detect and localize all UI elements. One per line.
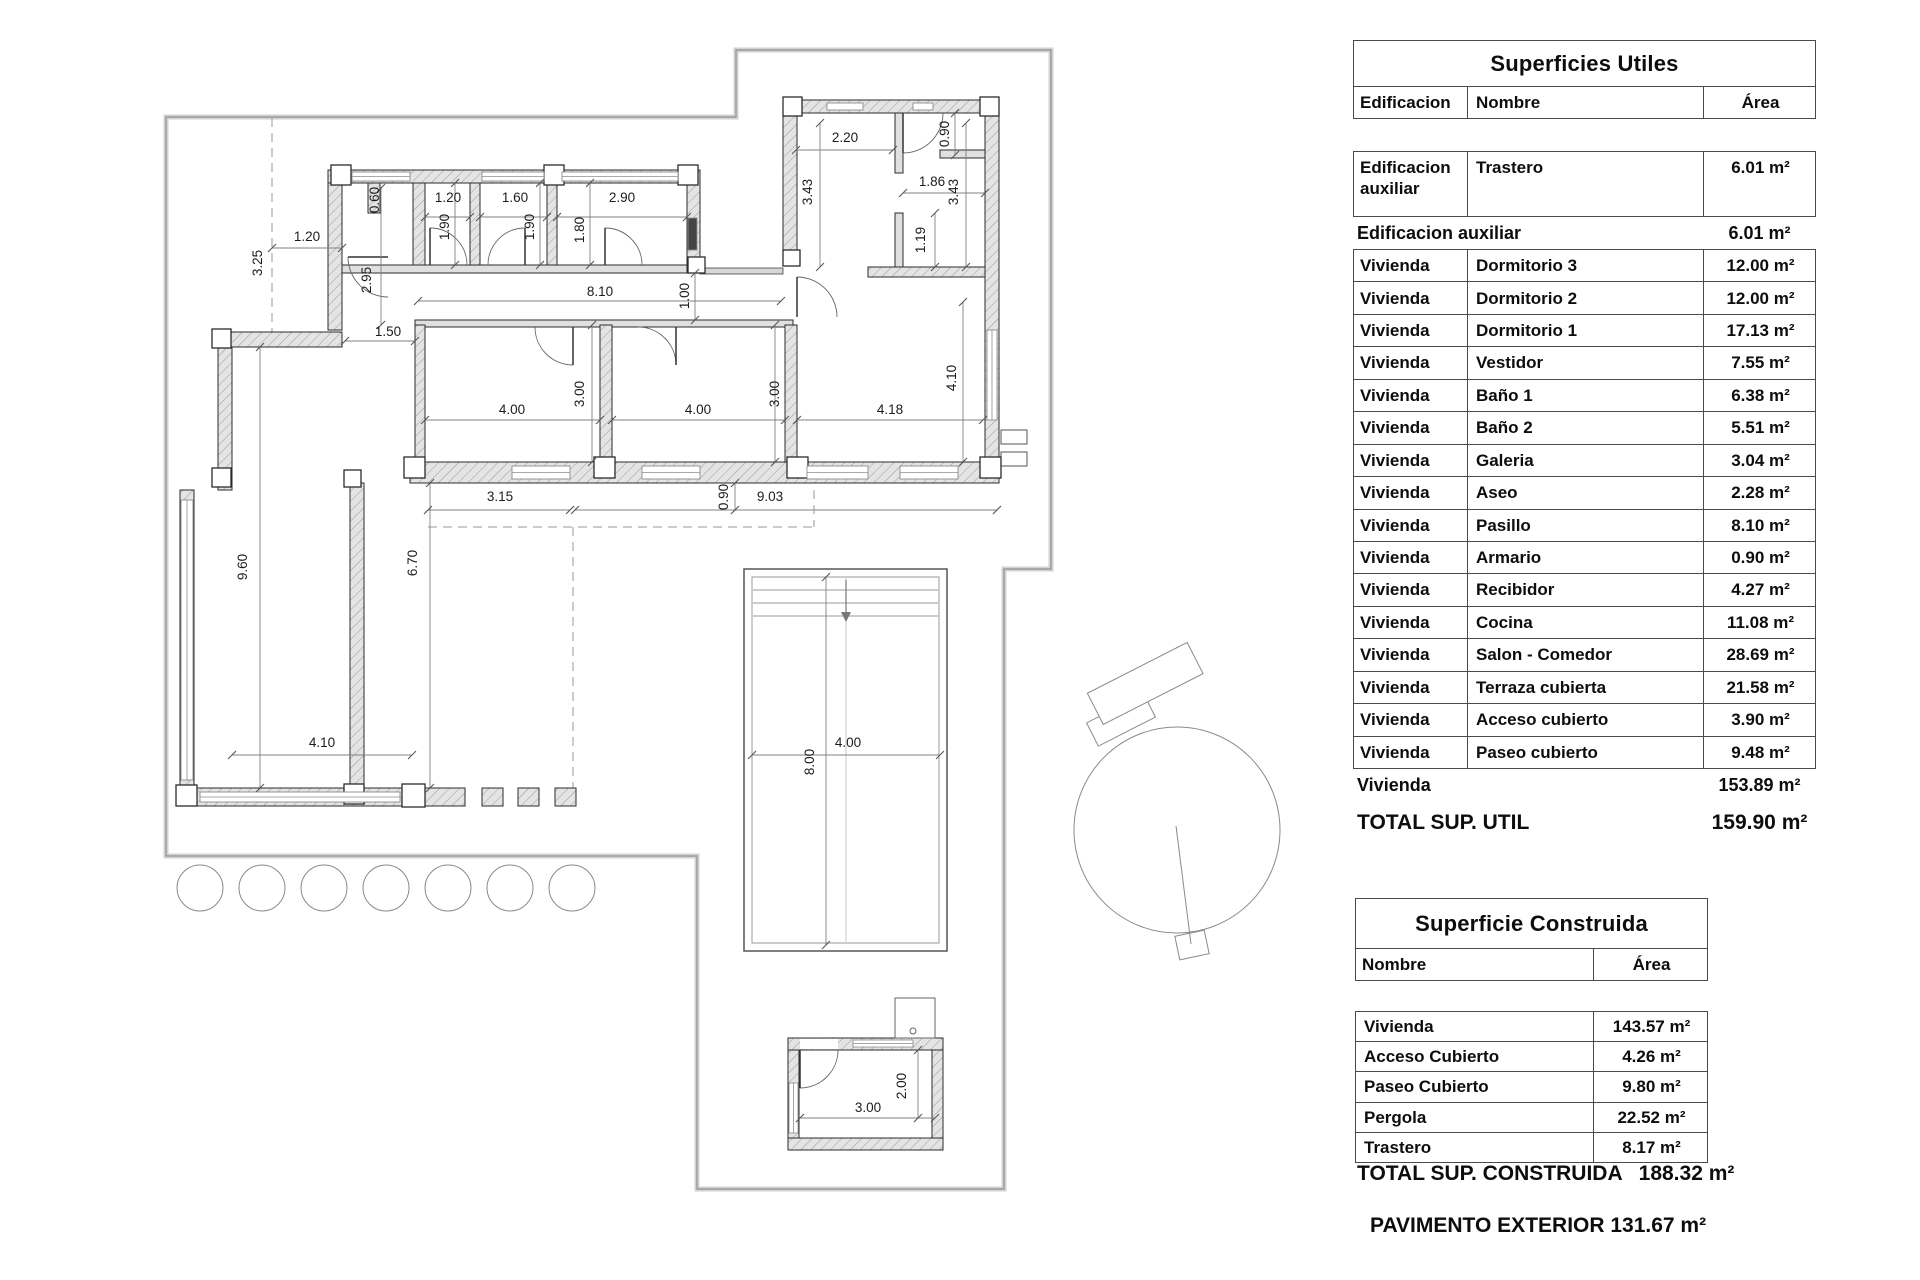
column-header-nombre: Nombre: [1356, 949, 1594, 980]
dimension-label: 4.00: [685, 402, 711, 417]
cell-area: 17.13 m²: [1704, 315, 1817, 346]
table-row: Pergola22.52 m²: [1356, 1103, 1707, 1133]
garden-trees: [177, 865, 595, 911]
cell-edificacion: Vivienda: [1354, 477, 1468, 508]
total-sup-util: TOTAL SUP. UTIL 159.90 m²: [1353, 802, 1816, 844]
cell-area: 6.38 m²: [1704, 380, 1817, 411]
vivienda-rows-section: ViviendaDormitorio 312.00 m²ViviendaDorm…: [1353, 249, 1816, 769]
outbuilding-trastero: [788, 998, 943, 1150]
subtotal-vivienda: Vivienda 153.89 m²: [1353, 769, 1816, 802]
cell-edificacion: Vivienda: [1354, 445, 1468, 476]
dimension-label: 6.70: [405, 550, 420, 576]
table-row: Vivienda143.57 m²: [1356, 1012, 1707, 1042]
dimension-label: 4.00: [835, 735, 861, 750]
cell-area: 0.90 m²: [1704, 542, 1817, 573]
table-row: ViviendaRecibidor4.27 m²: [1354, 574, 1815, 606]
cell-area: 9.48 m²: [1704, 737, 1817, 768]
cell-area: 12.00 m²: [1704, 250, 1817, 281]
dimension-label: 9.03: [757, 489, 783, 504]
column-header-nombre: Nombre: [1468, 87, 1704, 118]
pool: [744, 569, 947, 951]
cell-nombre: Terraza cubierta: [1468, 672, 1704, 703]
cell-area: 4.26 m²: [1594, 1042, 1709, 1071]
table-row: Trastero8.17 m²: [1356, 1133, 1707, 1162]
dimension-label: 1.20: [435, 190, 461, 205]
dimension-label: 1.19: [913, 227, 928, 253]
cell-edificacion: Vivienda: [1354, 347, 1468, 378]
dimension-label: 3.43: [946, 179, 961, 205]
table-row: ViviendaDormitorio 312.00 m²: [1354, 250, 1815, 282]
dimension-label: 1.86: [919, 174, 945, 189]
dimension-label: 1.90: [522, 214, 537, 240]
cell-edificacion: Vivienda: [1354, 704, 1468, 735]
cell-nombre: Pasillo: [1468, 510, 1704, 541]
table-row: Edificacion auxiliar Trastero 6.01 m²: [1354, 152, 1815, 216]
cell-area: 22.52 m²: [1594, 1103, 1709, 1132]
table-row: ViviendaDormitorio 212.00 m²: [1354, 282, 1815, 314]
table-row: ViviendaTerraza cubierta21.58 m²: [1354, 672, 1815, 704]
dimension-label: 2.95: [359, 267, 374, 293]
cell-area: 3.90 m²: [1704, 704, 1817, 735]
cell-area: 12.00 m²: [1704, 282, 1817, 313]
floor-plan: 1.203.250.602.951.501.201.602.901.901.90…: [0, 0, 1350, 1280]
cell-nombre: Dormitorio 2: [1468, 282, 1704, 313]
cell-nombre: Paseo cubierto: [1468, 737, 1704, 768]
cell-area: 5.51 m²: [1704, 412, 1817, 443]
cell-nombre: Dormitorio 1: [1468, 315, 1704, 346]
cell-area: 7.55 m²: [1704, 347, 1817, 378]
table-row: ViviendaDormitorio 117.13 m²: [1354, 315, 1815, 347]
cell-nombre: Dormitorio 3: [1468, 250, 1704, 281]
cell-edificacion: Vivienda: [1354, 380, 1468, 411]
table-row: Paseo Cubierto9.80 m²: [1356, 1072, 1707, 1102]
total-sup-construida: TOTAL SUP. CONSTRUIDA 188.32 m²: [1357, 1162, 1734, 1186]
cell-nombre: Vestidor: [1468, 347, 1704, 378]
column-header-edificacion: Edificacion: [1354, 87, 1468, 118]
dimension-label: 1.00: [677, 283, 692, 309]
cell-area: 143.57 m²: [1594, 1012, 1709, 1041]
table-row: ViviendaPaseo cubierto9.48 m²: [1354, 737, 1815, 768]
cell-area: 2.28 m²: [1704, 477, 1817, 508]
dimension-label: 3.00: [767, 381, 782, 407]
dimension-label: 3.00: [572, 381, 587, 407]
cell-edificacion: Vivienda: [1354, 672, 1468, 703]
cell-nombre: Cocina: [1468, 607, 1704, 638]
dimension-label: 4.00: [499, 402, 525, 417]
table-row: ViviendaBaño 16.38 m²: [1354, 380, 1815, 412]
column-header-area: Área: [1704, 87, 1817, 118]
dimension-label: 0.90: [716, 484, 731, 510]
table-row: ViviendaBaño 25.51 m²: [1354, 412, 1815, 444]
aux-row-section: Edificacion auxiliar Trastero 6.01 m²: [1353, 151, 1816, 217]
cell-area: 9.80 m²: [1594, 1072, 1709, 1101]
cell-edificacion: Vivienda: [1354, 315, 1468, 346]
cell-nombre: Acceso cubierto: [1468, 704, 1704, 735]
cell-edificacion: Vivienda: [1354, 412, 1468, 443]
table-row: ViviendaAcceso cubierto3.90 m²: [1354, 704, 1815, 736]
cell-area: 8.10 m²: [1704, 510, 1817, 541]
cell-nombre: Vivienda: [1356, 1012, 1594, 1041]
dimension-label: 3.00: [855, 1100, 881, 1115]
dimension-label: 4.10: [309, 735, 335, 750]
cell-area: 3.04 m²: [1704, 445, 1817, 476]
dimension-label: 1.20: [294, 229, 320, 244]
dimension-label: 3.43: [800, 179, 815, 205]
table-row: ViviendaPasillo8.10 m²: [1354, 510, 1815, 542]
dimension-label: 2.00: [894, 1073, 909, 1099]
exterior-units: [1001, 430, 1027, 466]
dimension-label: 3.25: [250, 250, 265, 276]
cell-edificacion: Vivienda: [1354, 639, 1468, 670]
cell-nombre: Pergola: [1356, 1103, 1594, 1132]
cell-nombre: Aseo: [1468, 477, 1704, 508]
dimension-label: 1.80: [572, 217, 587, 243]
cell-nombre: Recibidor: [1468, 574, 1704, 605]
cell-area: 28.69 m²: [1704, 639, 1817, 670]
cell-edificacion: Vivienda: [1354, 282, 1468, 313]
cell-nombre: Trastero: [1356, 1133, 1594, 1162]
superficies-utiles-table: Superficies Utiles Edificacion Nombre Ár…: [1353, 40, 1816, 844]
cell-edificacion: Vivienda: [1354, 607, 1468, 638]
cell-nombre: Baño 2: [1468, 412, 1704, 443]
table-row: ViviendaArmario0.90 m²: [1354, 542, 1815, 574]
column-header-area: Área: [1594, 949, 1709, 980]
cell-nombre: Baño 1: [1468, 380, 1704, 411]
dimension-label: 0.60: [367, 187, 382, 213]
cell-nombre: Armario: [1468, 542, 1704, 573]
garden-tree-large: [1074, 642, 1280, 959]
table-row: ViviendaAseo2.28 m²: [1354, 477, 1815, 509]
cell-edificacion: Vivienda: [1354, 250, 1468, 281]
dimension-label: 1.60: [502, 190, 528, 205]
table-row: Acceso Cubierto4.26 m²: [1356, 1042, 1707, 1072]
dimension-label: 2.90: [609, 190, 635, 205]
dimension-label: 2.20: [832, 130, 858, 145]
dimension-label: 3.15: [487, 489, 513, 504]
cell-nombre: Salon - Comedor: [1468, 639, 1704, 670]
dimension-label: 0.90: [937, 121, 952, 147]
cell-area: 11.08 m²: [1704, 607, 1817, 638]
cell-area: 4.27 m²: [1704, 574, 1817, 605]
cell-nombre: Acceso Cubierto: [1356, 1042, 1594, 1071]
table-row: ViviendaGaleria3.04 m²: [1354, 445, 1815, 477]
table-row: ViviendaVestidor7.55 m²: [1354, 347, 1815, 379]
dimension-label: 8.10: [587, 284, 613, 299]
cell-edificacion: Vivienda: [1354, 510, 1468, 541]
subtotal-aux: Edificacion auxiliar 6.01 m²: [1353, 217, 1816, 249]
cell-edificacion: Vivienda: [1354, 542, 1468, 573]
construida-rows-section: Vivienda143.57 m²Acceso Cubierto4.26 m²P…: [1355, 1011, 1708, 1163]
dimension-label: 8.00: [802, 749, 817, 775]
table-row: ViviendaCocina11.08 m²: [1354, 607, 1815, 639]
dimension-label: 4.10: [944, 365, 959, 391]
cell-edificacion: Vivienda: [1354, 737, 1468, 768]
cell-nombre: Paseo Cubierto: [1356, 1072, 1594, 1101]
dimension-label: 1.50: [375, 324, 401, 339]
cell-area: 8.17 m²: [1594, 1133, 1709, 1162]
pavimento-exterior: PAVIMENTO EXTERIOR 131.67 m²: [1370, 1214, 1706, 1238]
table-header: Nombre Área: [1355, 949, 1708, 981]
cell-nombre: Galeria: [1468, 445, 1704, 476]
cell-area: 21.58 m²: [1704, 672, 1817, 703]
superficie-construida-table: Superficie Construida Nombre Área Vivien…: [1355, 898, 1708, 1163]
table-title: Superficies Utiles: [1353, 40, 1816, 87]
dimension-label: 9.60: [235, 554, 250, 580]
dimension-label: 4.18: [877, 402, 903, 417]
table-header: Edificacion Nombre Área: [1353, 87, 1816, 119]
cell-edificacion: Vivienda: [1354, 574, 1468, 605]
dimension-label: 1.90: [437, 214, 452, 240]
table-row: ViviendaSalon - Comedor28.69 m²: [1354, 639, 1815, 671]
table-title: Superficie Construida: [1355, 898, 1708, 949]
